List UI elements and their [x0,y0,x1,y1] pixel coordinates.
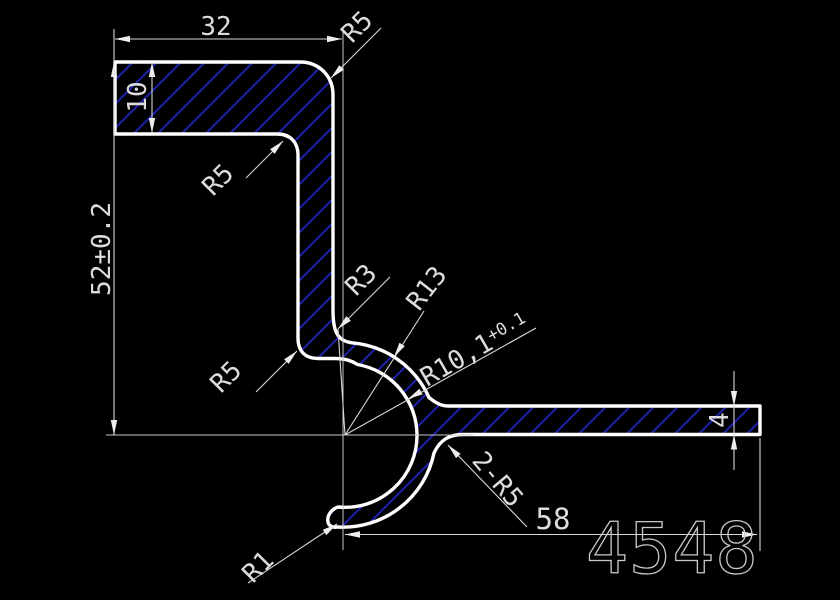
cad-drawing: 32 R5 10 52±0.2 R5 R5 R3 R13 R10,1+0.1 2… [0,0,840,600]
dim-text-4: 4 [705,412,735,428]
radius-text-r1: R1 [237,546,280,589]
radius-text-r5-hook: R5 [205,356,248,399]
dim-text-58: 58 [536,502,571,536]
dim-text-52: 52±0.2 [87,202,117,296]
radius-text-r5-flange: R5 [197,159,240,202]
dim-text-32: 32 [200,12,231,42]
arrow-52-bottom [111,420,117,435]
cad-viewport: 32 R5 10 52±0.2 R5 R5 R3 R13 R10,1+0.1 2… [0,0,840,600]
arrow-32-left [115,36,130,42]
part-number-text: 4548 [586,508,759,590]
radius-text-r3: R3 [340,259,383,302]
radius-text-r10-main: R10,1 [416,328,499,393]
radius-text-r10-tolerance: +0.1 [484,308,529,346]
arrow-58-left [345,531,360,537]
radius-text-r5-top: R5 [336,6,379,49]
arrow-4-top [731,391,737,406]
dim-text-10: 10 [123,81,153,112]
arrow-r13 [394,343,405,357]
radius-text-r13: R13 [401,261,454,316]
arrow-4-bottom [731,435,737,450]
radius-text-r10: R10,1+0.1 [416,307,534,393]
radius-text-2-r5: 2-R5 [466,446,529,513]
arrow-32-right [327,36,342,42]
